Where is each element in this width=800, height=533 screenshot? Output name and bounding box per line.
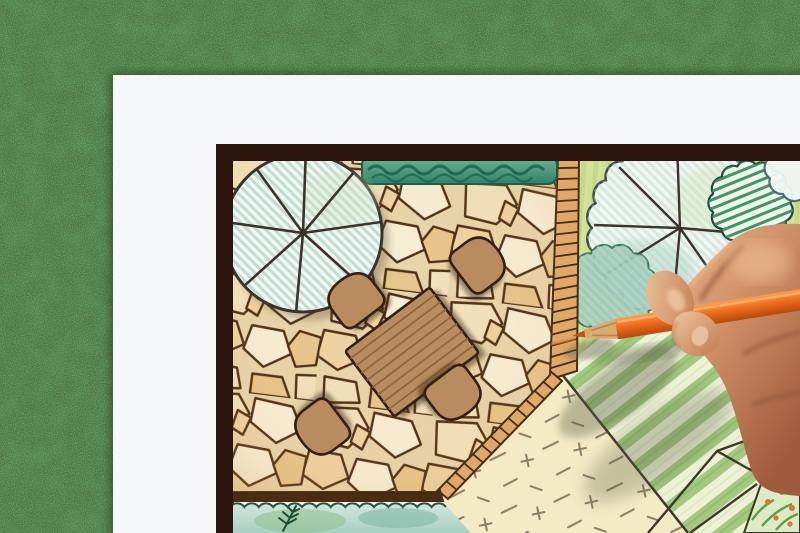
knuckle-highlight [730, 242, 790, 282]
planting-bed [230, 503, 471, 533]
photo-garden-plan-drawing: Photograph: a hand drawing a backyard ga… [0, 0, 800, 533]
